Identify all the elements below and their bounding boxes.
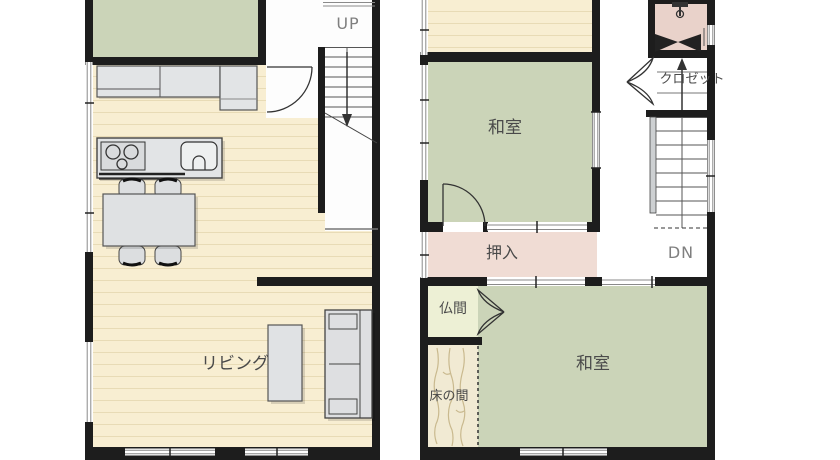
tokonoma-label: 床の間 bbox=[418, 390, 480, 404]
wall-segment bbox=[648, 50, 712, 58]
wall-segment bbox=[85, 0, 93, 62]
floor1-plan: UP リビング bbox=[85, 0, 380, 460]
wall-segment bbox=[372, 0, 380, 460]
wall-segment bbox=[648, 0, 655, 54]
wall-segment bbox=[420, 447, 715, 460]
wall-segment bbox=[258, 0, 266, 65]
toilet-room bbox=[655, 4, 707, 50]
wall-segment bbox=[420, 277, 487, 286]
living-room-label: リビング bbox=[190, 355, 280, 374]
washitsu-bottom-label: 和室 bbox=[553, 355, 633, 374]
window bbox=[86, 342, 93, 422]
wall-segment bbox=[648, 0, 715, 4]
up-label: UP bbox=[330, 15, 366, 33]
wall-segment bbox=[483, 222, 488, 232]
dn-label: DN bbox=[659, 244, 703, 262]
wall-segment bbox=[707, 0, 715, 460]
room-top-left bbox=[93, 0, 258, 57]
stair-wall bbox=[318, 47, 325, 213]
wall-segment bbox=[420, 337, 482, 345]
double-door bbox=[627, 58, 653, 104]
floor2-plan: 和室 クロゼット 押入 DN 仏間 床の間 和室 bbox=[420, 0, 715, 460]
wall-segment bbox=[592, 0, 600, 232]
room-top-hall bbox=[428, 0, 592, 52]
wall-segment bbox=[655, 277, 715, 286]
stairs-down bbox=[650, 117, 710, 228]
wall-segment bbox=[420, 52, 600, 62]
butsuma-label: 仏間 bbox=[423, 302, 483, 317]
wall-segment bbox=[85, 447, 380, 460]
washitsu-top-room bbox=[428, 62, 592, 222]
floorplan-canvas: { "floor1": { "up_label": "UP", "living_… bbox=[0, 0, 840, 460]
oshiire-label: 押入 bbox=[462, 244, 542, 262]
washitsu-top-label: 和室 bbox=[465, 119, 545, 138]
hallway-under-stairs bbox=[325, 118, 372, 231]
interior-wall bbox=[257, 277, 380, 286]
wall-segment bbox=[585, 277, 602, 286]
wall-segment bbox=[646, 110, 712, 117]
wall-segment bbox=[587, 222, 600, 232]
wall-segment bbox=[420, 222, 443, 232]
closet-label: クロゼット bbox=[651, 73, 733, 87]
wall-segment bbox=[85, 252, 93, 342]
wall-segment bbox=[85, 57, 266, 65]
